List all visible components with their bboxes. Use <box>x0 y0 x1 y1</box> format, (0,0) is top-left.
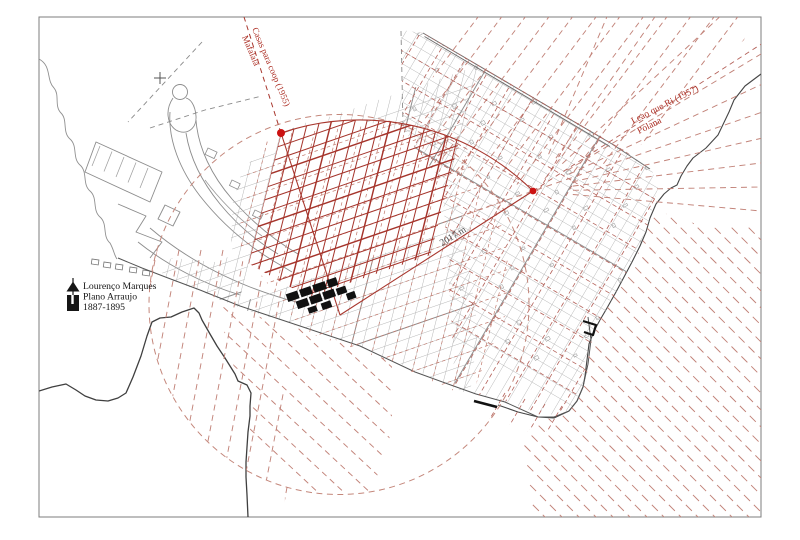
svg-text:Plano Arraujo: Plano Arraujo <box>83 292 137 303</box>
svg-text:1887-1895: 1887-1895 <box>83 302 125 313</box>
svg-text:Lourenço Marques: Lourenço Marques <box>83 281 157 292</box>
